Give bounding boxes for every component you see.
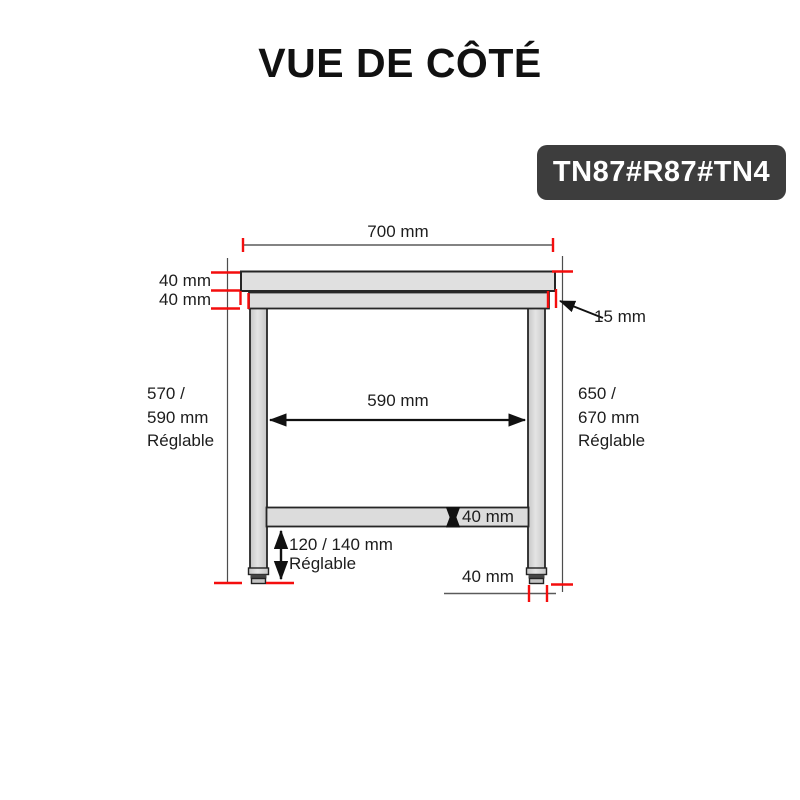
dim-foot-width-label: 40 mm [438, 568, 538, 586]
tabletop [241, 272, 555, 292]
dim-shelf-thickness-label: 40 mm [462, 508, 514, 526]
under-top-rail [249, 293, 549, 309]
side-view-page: VUE DE CÔTÉ TN87#R87#TN4 [0, 0, 800, 800]
right-leg [528, 291, 545, 569]
dim-left-height-line3: Réglable [147, 429, 214, 453]
dim-left-height-label: 570 / 590 mm Réglable [147, 382, 214, 453]
dim-right-height-label: 650 / 670 mm Réglable [578, 382, 645, 453]
dim-top-width-label: 700 mm [328, 223, 468, 241]
dim-top-thickness-label: 40 mm [139, 272, 211, 290]
dim-foot-adjust-line1: 120 / 140 mm [289, 536, 393, 555]
dim-foot-adjust-label: 120 / 140 mm Réglable [289, 536, 393, 573]
dim-foot-adjust-line2: Réglable [289, 555, 393, 574]
dim-right-height-line1: 650 / [578, 382, 645, 406]
left-leg [250, 291, 267, 569]
dim-edge-offset-label: 15 mm [594, 308, 646, 326]
dim-frame-thickness-label: 40 mm [139, 291, 211, 309]
dim-left-height-line2: 590 mm [147, 406, 214, 430]
dim-left-height-line1: 570 / [147, 382, 214, 406]
left-foot [249, 568, 269, 584]
dim-right-height-line2: 670 mm [578, 406, 645, 430]
dim-inner-width-label: 590 mm [328, 392, 468, 410]
dim-right-height-line3: Réglable [578, 429, 645, 453]
